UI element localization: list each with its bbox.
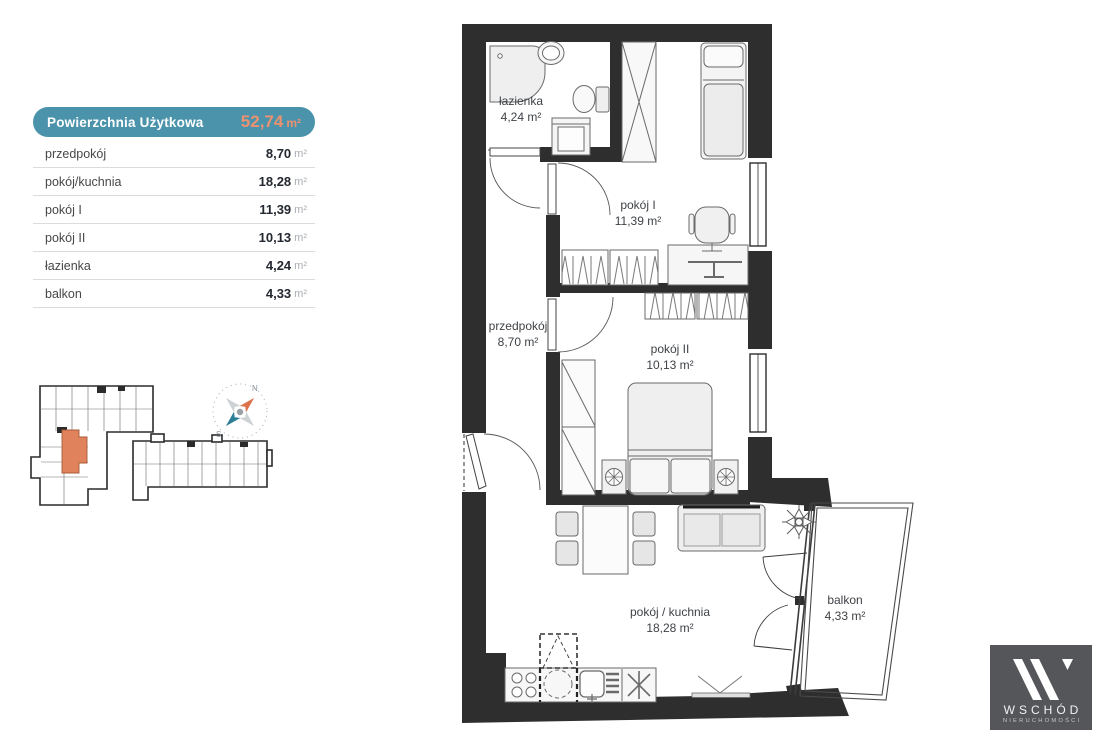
room-name: pokój I [620, 198, 655, 212]
balcony-door-leaf [763, 553, 807, 557]
room-name: łazienka [499, 94, 543, 108]
logo-tagline-text: NIERUCHOMOŚCI [990, 718, 1092, 724]
room-label-balkon: balkon 4,33 m² [775, 592, 915, 624]
chair-icon [633, 541, 655, 565]
door-swing-arc [484, 434, 540, 490]
toilet-tank [596, 87, 609, 112]
door-swing-arc [490, 158, 540, 208]
room-label-lazienka: łazienka 4,24 m² [451, 93, 591, 125]
room-label-pokoj1: pokój I 11,39 m² [568, 197, 708, 229]
tv-icon [692, 676, 750, 698]
room-label-pokoj2: pokój II 10,13 m² [600, 341, 740, 373]
plant-icon [782, 505, 816, 539]
chair-icon [556, 512, 578, 536]
dining-table-icon [583, 506, 628, 574]
room-area: 11,39 m² [568, 213, 708, 229]
room-area: 18,28 m² [580, 620, 760, 636]
room-name: przedpokój [489, 319, 548, 333]
room-area: 8,70 m² [448, 334, 588, 350]
sink-icon [580, 671, 604, 697]
room2-furniture [562, 293, 748, 495]
vent-icon [540, 634, 577, 668]
hob-icon [512, 673, 522, 683]
door-leaf [548, 164, 556, 214]
door-leaf [490, 148, 540, 156]
balcony-door-leaf [754, 646, 792, 650]
chair-icon [633, 512, 655, 536]
logo-brand-text: WSCHÓD [990, 703, 1092, 717]
room-area: 4,24 m² [451, 109, 591, 125]
room-name: balkon [827, 593, 862, 607]
room-name: pokój II [651, 342, 690, 356]
agency-logo: WSCHÓD NIERUCHOMOŚCI [990, 645, 1092, 730]
room-name: pokój / kuchnia [630, 605, 710, 619]
room-label-przedpokoj: przedpokój 8,70 m² [448, 318, 588, 350]
room-area: 4,33 m² [775, 608, 915, 624]
logo-w-mark [990, 645, 1092, 705]
floor-plan-page: Powierzchnia Użytkowa 52,74m² przedpokój… [0, 0, 1100, 744]
entrance-door-leaf [466, 434, 486, 489]
chair-icon [556, 541, 578, 565]
room1-furniture [562, 42, 748, 285]
room-area: 10,13 m² [600, 357, 740, 373]
room-label-kuchnia: pokój / kuchnia 18,28 m² [580, 604, 760, 636]
